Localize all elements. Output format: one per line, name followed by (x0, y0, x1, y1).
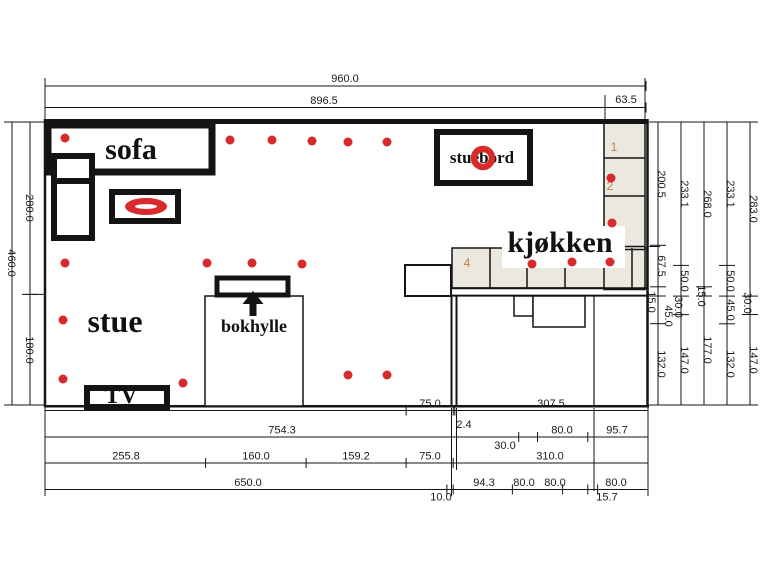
dim-bottom-row4-label: 15.7 (596, 492, 617, 504)
spotlight-dot (248, 259, 257, 268)
dim-bottom-row1-label: 75.0 (419, 398, 440, 410)
dim-bottom-row3-label: 159.2 (342, 451, 370, 463)
dim-bottom-row1-label: 307.5 (537, 398, 565, 410)
dim-right-2-label: 147.0 (678, 346, 690, 374)
cabinet-label-4: 4 (464, 256, 471, 270)
dim-right-5-label: 147.0 (747, 346, 759, 374)
spotlight-dot (59, 375, 68, 384)
dim-top-896-label: 63.5 (615, 94, 636, 106)
spotlight-dot (606, 258, 615, 267)
sofa-chaise-large (54, 181, 92, 238)
dim-right-2-label: 50.0 (678, 270, 690, 291)
dim-bottom-row2-label: 80.0 (551, 425, 572, 437)
dim-right-1-label: 132.0 (655, 350, 667, 378)
dim-right-2-label: 233.1 (678, 180, 690, 208)
dim-right-4-label: 45.0 (724, 299, 736, 320)
dim-right-4-label: 233.1 (724, 180, 736, 208)
dim-left-280-180-label: 180.0 (23, 336, 35, 364)
spotlight-dot (568, 258, 577, 267)
dim-bottom-row4-label: 94.3 (473, 477, 494, 489)
spotlight-dot (203, 259, 212, 268)
spotlight-dot (61, 134, 70, 143)
up-arrow-icon-stem (250, 303, 257, 316)
dim-top-960-label: 960.0 (331, 73, 359, 85)
dim-top-896-label: 896.5 (310, 95, 338, 107)
spotlight-dot (61, 259, 70, 268)
spotlight-dot (179, 379, 188, 388)
dim-bottom-row4-label: 10.0 (430, 492, 451, 504)
spotlight-dot (344, 138, 353, 147)
dim-bottom-row4-label: 650.0 (234, 477, 262, 489)
label-kjokken: kjøkken (507, 226, 612, 259)
label-sofa: sofa (105, 133, 157, 166)
spotlight-dot (607, 174, 616, 183)
dim-right-2-label: 30.0 (672, 296, 684, 317)
dim-bottom-row1-label: 2.4 (456, 419, 471, 431)
dim-right-4-label: 132.0 (724, 350, 736, 378)
spotlight-dot (608, 219, 617, 228)
step-box-small (514, 296, 533, 316)
cabinet-label-1: 1 (611, 140, 618, 154)
dim-right-1-label: 200.5 (655, 170, 667, 198)
dim-right-3-label: 268.0 (701, 190, 713, 218)
dim-bottom-row2-label: 754.3 (268, 425, 296, 437)
dim-right-5-label: 30.0 (741, 292, 753, 313)
dim-bottom-row2-label: 30.0 (494, 440, 515, 452)
dim-bottom-row4-label: 80.0 (513, 477, 534, 489)
spotlight-dot (383, 138, 392, 147)
dim-left-460-label: 460.0 (5, 249, 17, 277)
door-opening-box (405, 265, 451, 296)
step-box-large (533, 296, 585, 327)
dim-bottom-row4-label: 80.0 (605, 477, 626, 489)
dim-right-3-label: 177.0 (701, 336, 713, 364)
spotlight-dot (344, 371, 353, 380)
dim-right-3-label: 15.0 (695, 285, 707, 306)
label-tv: TV (104, 383, 138, 409)
dim-bottom-row4-label: 80.0 (544, 477, 565, 489)
spotlight-dot (528, 260, 537, 269)
dim-right-5-label: 283.0 (747, 195, 759, 223)
dim-right-1-label: 67.5 (655, 255, 667, 276)
label-bokhylle: bokhylle (221, 316, 287, 336)
label-stue: stue (87, 303, 142, 339)
floorplan-drawing: 960.0896.563.5575.075.02.4307.5754.330.0… (0, 0, 760, 570)
sofa-chaise-small (54, 156, 92, 181)
dim-bottom-row2-label: 95.7 (606, 425, 627, 437)
spotlight-dot (308, 137, 317, 146)
table-decor-ellipse-inner (135, 204, 157, 209)
spotlight-dot (268, 136, 277, 145)
dim-left-280-180-label: 280.0 (23, 194, 35, 222)
spotlight-dot (298, 260, 307, 269)
floorplan-canvas: 960.0896.563.5575.075.02.4307.5754.330.0… (0, 0, 760, 570)
spotlight-dot (59, 316, 68, 325)
dim-bottom-row3-label: 160.0 (242, 451, 270, 463)
dim-bottom-row3-label: 75.0 (419, 451, 440, 463)
spotlight-dot (383, 371, 392, 380)
dim-bottom-row3-label: 255.8 (112, 451, 140, 463)
spotlight-dot (226, 136, 235, 145)
dim-bottom-row3-label: 310.0 (536, 451, 564, 463)
dim-right-4-label: 50.0 (724, 270, 736, 291)
